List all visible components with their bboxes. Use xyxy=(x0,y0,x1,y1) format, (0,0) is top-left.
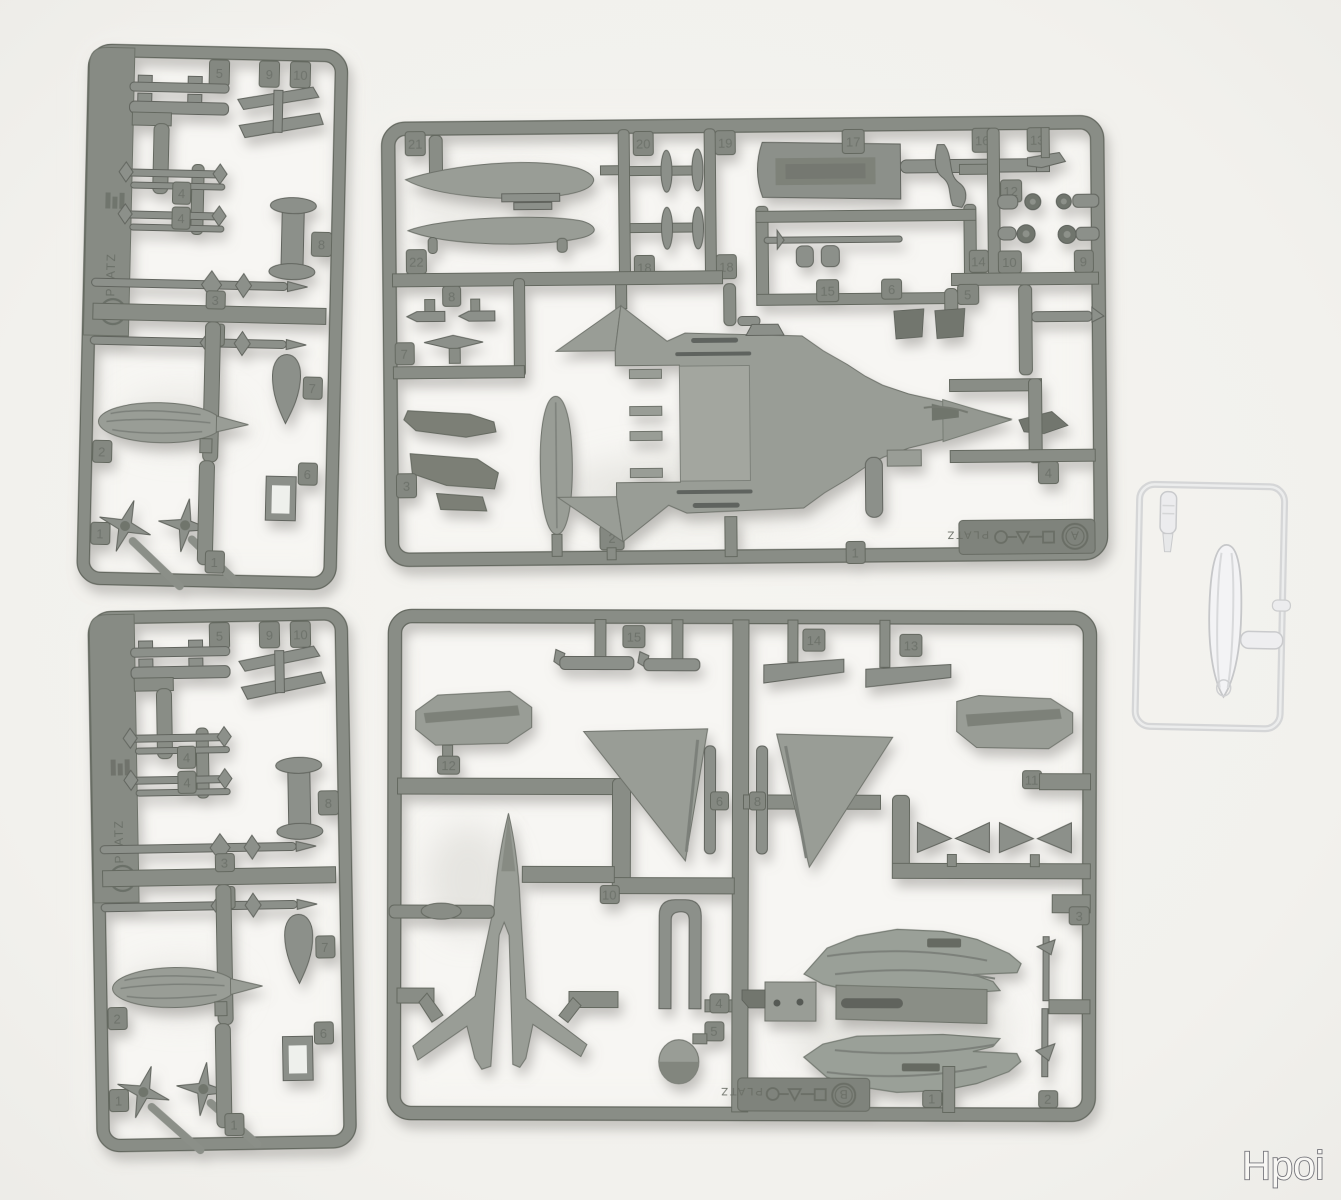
svg-text:A: A xyxy=(1071,528,1079,542)
svg-text:7: 7 xyxy=(401,347,408,362)
svg-text:5: 5 xyxy=(964,287,971,302)
svg-text:4: 4 xyxy=(715,996,722,1011)
svg-text:3: 3 xyxy=(403,479,410,494)
svg-text:17: 17 xyxy=(846,134,861,149)
svg-text:10: 10 xyxy=(1002,255,1017,270)
svg-text:14: 14 xyxy=(807,633,822,648)
svg-text:12: 12 xyxy=(441,758,456,773)
svg-text:11: 11 xyxy=(1025,773,1039,788)
svg-text:4: 4 xyxy=(1045,466,1052,481)
svg-text:8: 8 xyxy=(754,794,761,809)
svg-text:15: 15 xyxy=(627,630,642,645)
svg-text:15: 15 xyxy=(820,284,835,299)
svg-text:2: 2 xyxy=(1044,1092,1051,1107)
svg-text:13: 13 xyxy=(904,638,919,653)
svg-text:B: B xyxy=(840,1087,848,1101)
svg-text:19: 19 xyxy=(718,136,733,151)
svg-text:3: 3 xyxy=(1076,909,1083,924)
svg-text:6: 6 xyxy=(888,282,895,297)
svg-text:Hpoi: Hpoi xyxy=(1242,1144,1324,1188)
svg-text:PLATZ: PLATZ xyxy=(946,528,990,540)
svg-text:6: 6 xyxy=(716,794,723,809)
svg-text:21: 21 xyxy=(408,137,423,152)
svg-text:8: 8 xyxy=(448,289,455,304)
svg-text:20: 20 xyxy=(636,136,651,151)
svg-text:PLATZ: PLATZ xyxy=(719,1085,762,1097)
svg-text:5: 5 xyxy=(710,1024,717,1039)
svg-text:1: 1 xyxy=(928,1091,935,1106)
svg-text:1: 1 xyxy=(851,545,858,560)
svg-text:10: 10 xyxy=(602,888,617,903)
svg-text:14: 14 xyxy=(971,254,986,269)
svg-text:9: 9 xyxy=(1080,254,1087,269)
svg-text:22: 22 xyxy=(409,255,424,270)
